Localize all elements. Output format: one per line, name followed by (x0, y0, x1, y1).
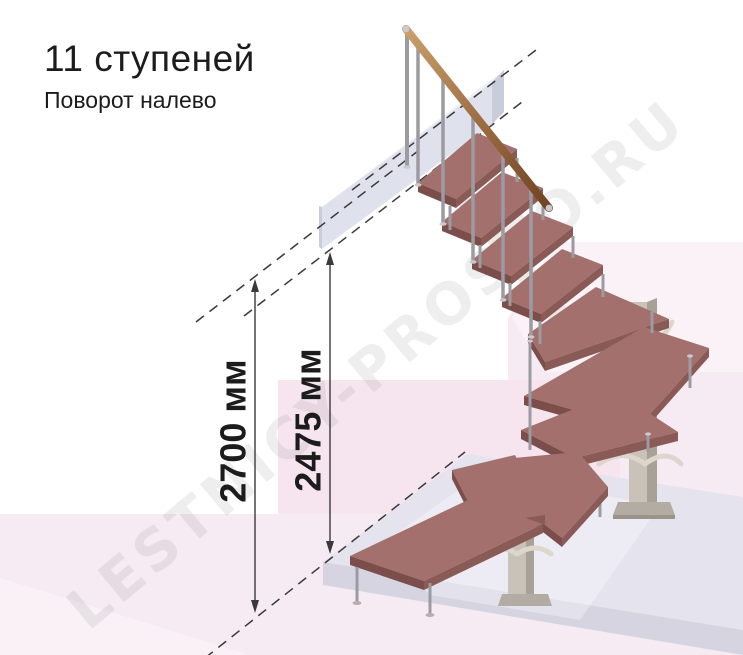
leg-foot (426, 613, 435, 617)
baluster-cap (500, 298, 507, 302)
handrail-end-cap (546, 205, 553, 212)
baluster-cap (470, 260, 477, 264)
dimension-label-2700: 2700 мм (213, 359, 254, 502)
center-column-base (613, 502, 675, 515)
title-block: 11 ступеней Поворот налево (44, 40, 255, 114)
baluster-cap (440, 222, 447, 226)
page-title: 11 ступеней (44, 40, 255, 79)
page-subtitle: Поворот налево (44, 87, 255, 114)
dimension-label-2475: 2475 мм (288, 348, 329, 491)
handrail-end-cap (403, 26, 410, 33)
extension-line-2700 (196, 151, 418, 322)
staircase-diagram: LESTNICY-PROSTO.RU (0, 0, 743, 655)
front-column-base (498, 594, 552, 606)
arrowhead-up (326, 252, 334, 265)
leg-foot (353, 601, 362, 605)
rod-cap (527, 339, 533, 342)
rod-cap (645, 432, 651, 435)
baluster-cap (415, 183, 422, 187)
arrowhead-up (251, 279, 259, 292)
rod-cap (687, 354, 693, 357)
baluster-cap (528, 335, 535, 339)
baluster-cap (404, 165, 411, 169)
center-column-base-shadow (613, 515, 675, 519)
